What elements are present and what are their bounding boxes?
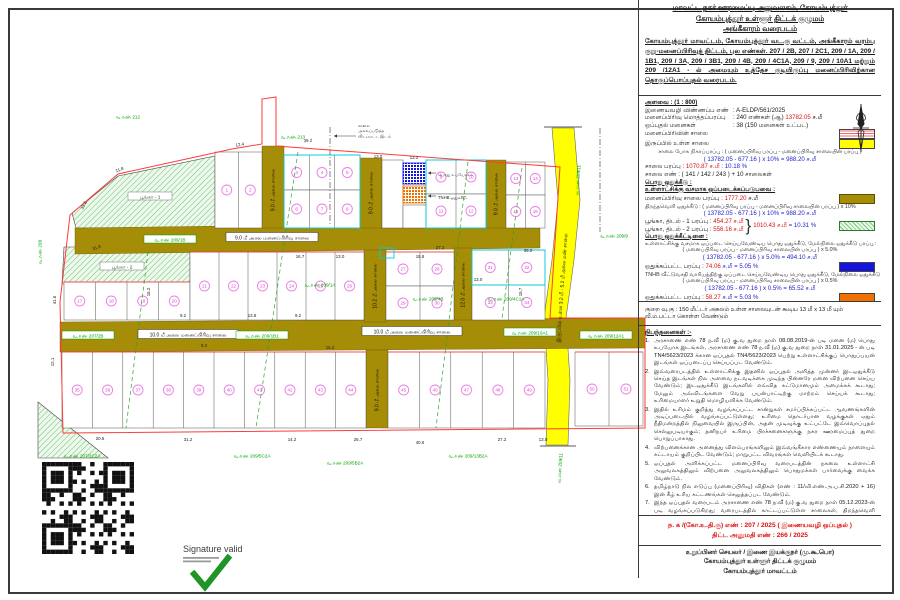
dimension-label: 13.0 — [539, 437, 548, 442]
plot-number: 28 — [434, 267, 440, 272]
svg-text:வ.எண் 213: வ.எண் 213 — [281, 135, 305, 140]
road-label: 9.0 மீ அகல சாலை — [494, 173, 500, 215]
plot-number: 4 — [321, 170, 324, 175]
signature-valid-text: Signature valid — [183, 544, 243, 554]
tnhb-area: 58.27 — [706, 294, 721, 302]
condition-item: 4.விற்பனைக்கான அனைத்து விளம்பரங்களிலும் … — [645, 445, 875, 460]
survey-number-label: வ.எண் 208 — [38, 240, 43, 264]
plot-number: 27 — [400, 267, 406, 272]
qr-code — [39, 459, 137, 557]
svg-text:10.0 மீ அகல மனைப்பிரிவு சாலை: 10.0 மீ அகல மனைப்பிரிவு சாலை — [150, 333, 227, 339]
legend-swatch-park — [839, 221, 875, 231]
road-label: 9.0 மீ அகல சாலை — [375, 369, 381, 411]
dimension-label: 16.7 — [296, 254, 305, 259]
plot-number: 29 — [400, 301, 406, 306]
plot-number: 35 — [75, 388, 81, 393]
plot-number: 23 — [260, 284, 266, 289]
legend-block: அளவை : (1 : 800) இணையவழி விண்ணப்ப எண்: A… — [639, 96, 881, 302]
svg-text:வ.எண் 209/5C2A: வ.எண் 209/5C2A — [234, 454, 272, 459]
survey-number-label: வ.எண் 209/12A1 — [580, 331, 632, 339]
plot-number: 43 — [318, 388, 324, 393]
plot-number: 13 — [513, 176, 519, 181]
survey-number-label: வ.எண் 209/13B2A — [448, 454, 488, 459]
plot-number: 49 — [527, 388, 533, 393]
road-label: 10.0 மீ அகல மனைப்பிரிவு சாலை — [138, 330, 238, 339]
condition-item: 6.தமிழ்நாடு நில எடுப்பு (மனைப்பிரிவு) வி… — [645, 484, 875, 499]
svg-text:12.0 மீ அகல சாலை: 12.0 மீ அகல சாலை — [461, 262, 467, 307]
svg-text:வ.எண் 209/1A: வ.எண் 209/1A — [305, 283, 337, 288]
approval-title: அங்கீகாரம் வரைபடம் — [645, 24, 875, 35]
plot-number: 12 — [468, 209, 474, 214]
handover-area: 74.06 — [706, 263, 721, 271]
dimension-label: 39.2 — [303, 138, 312, 144]
dimension-label: 41.6 — [52, 295, 57, 304]
plot-number: 6 — [295, 207, 298, 212]
open-space-calc-label: திறந்தவெளி ஒதுக்கீடு : ( மனைப்பிரிவு பரப… — [645, 204, 875, 211]
plot-number: 42 — [287, 388, 293, 393]
survey-number-label: வ.எண் 207/2B — [62, 331, 114, 339]
plot-number: 2 — [249, 188, 252, 193]
plot-number: 3 — [295, 170, 298, 175]
plot-number: 51 — [623, 387, 629, 392]
svg-text:வ.எண் 208: வ.எண் 208 — [38, 240, 43, 264]
svg-text:10.0 மீ அகல மனைப்பிரிவு சாலை: 10.0 மீ அகல மனைப்பிரிவு சாலை — [374, 330, 451, 336]
tnhb-sub: TNHB வீட்டுவசதி வாரியத்திற்கு ஒப்படை செய… — [645, 272, 875, 279]
survey-number-label: வ.எண் 209/11 — [556, 452, 563, 483]
dimension-label: 13.0 — [336, 254, 345, 259]
calc2-label: ( மனைப்பிரிவு பரப்பு - மனைப்பிரிவு சாலைய… — [645, 247, 875, 254]
svg-text:வ.எண் 209/9: வ.எண் 209/9 — [600, 234, 628, 239]
layout-map: பூங்கா - 1பூங்கா - 212345678910111213141… — [0, 0, 648, 600]
survey-number-label: வ.எண் 209/1B — [144, 235, 196, 243]
plot-number: 32 — [524, 265, 530, 270]
park-total-area: 1010.43 ச.மீ — [753, 222, 787, 229]
road-area-value: 1070.87 ச.மீ — [686, 163, 720, 171]
signatory-district: கோயம்புத்தூர் மாவட்டம் — [645, 567, 875, 576]
plot-number: 7 — [321, 207, 324, 212]
plot-number: 14 — [533, 176, 539, 181]
dimension-label: 20.5 — [96, 436, 105, 441]
svg-text:வ.எண் 209/1B1: வ.எண் 209/1B1 — [245, 334, 279, 339]
conditions-list: 1.அரசாணை எண் 78 ந.வீ (ம) கு.வ துறை நாள் … — [645, 338, 875, 516]
dimension-label: 9.2 — [180, 313, 187, 318]
dimension-label: 9.2 — [295, 313, 302, 318]
legend-swatch-public-use — [839, 262, 875, 272]
approved-plots-label: ஒப்புதல் மனைகள் — [645, 122, 733, 130]
digital-signature: Signature valid — [183, 544, 243, 587]
info-panel: மாவட்ட நகர் ஊரமைப்பு அலுவலகம், கோயம்புத்… — [638, 0, 881, 578]
park1-area: 454.27 ச.மீ — [713, 218, 743, 226]
svg-text:வ.எண் 209/13B2A: வ.எண் 209/13B2A — [448, 454, 488, 459]
survey-number-label: வ.எண் 213 — [281, 135, 305, 140]
approved-plots-value: : 38 (150 மனைகள் உட்பட) — [733, 122, 808, 130]
conditions-heading: நிபந்தனைகள் :- — [645, 329, 875, 337]
total-area-label: மனைப்பிரிவு மொத்தப்பரப்பு — [645, 114, 733, 122]
net-formula-label: சாலை போக நிகரப்பரப்பு : ( மனைப்பிரிவு பர… — [645, 149, 875, 156]
signature-checkmark-icon — [194, 558, 228, 587]
dimension-label: 9.2 — [201, 343, 208, 348]
condition-item: 3.இதில் உரிமம் குறித்து வழங்கப்பட்ட சான்… — [645, 407, 875, 443]
office-title: மாவட்ட நகர் ஊரமைப்பு அலுவலகம், கோயம்புத்… — [645, 3, 875, 14]
plot-number: 34 — [524, 300, 530, 305]
application-no-value: : A-ELDP/561/2025 — [733, 107, 785, 115]
dimension-label: 15.7 — [518, 287, 523, 296]
dimension-label: 15.2 — [146, 287, 151, 296]
legend-swatch-subdivision-road — [839, 194, 875, 204]
net-formula-value: ( 13782.05 - 677.16 ) x 10% = 988.20 ச.ம… — [645, 156, 875, 164]
dimension-label: 27.2 — [436, 245, 445, 250]
survey-number-label: வ.எண் 209/10A1 — [504, 328, 556, 336]
survey-number-label: வ.எண் 209/11 — [574, 164, 581, 195]
plot-number: 20 — [172, 299, 178, 304]
condition-item: 7.இந்த ஒப்புதல் வரைபடம் அரசாணை எண் 78 ந.… — [645, 500, 875, 516]
plot-number: 47 — [464, 388, 470, 393]
reference-block: ந. க /(கோ.உ.தி.கு) எண் : 207 / 2025 ( இண… — [639, 516, 881, 546]
dimension-label: 13.2 — [410, 155, 419, 160]
application-no-label: இணையவழி விண்ணப்ப எண் — [645, 107, 733, 115]
svg-text:9.0 மீ அகல மனைப்பிரிவு சாலை: 9.0 மீ அகல மனைப்பிரிவு சாலை — [235, 236, 309, 242]
svg-text:வ.எண் 209/11: வ.எண் 209/11 — [574, 164, 581, 195]
svg-text:விடப்பட்ட இடம்: விடப்பட்ட இடம் — [358, 133, 391, 139]
plot-number: 48 — [495, 388, 501, 393]
plot-number: 50 — [589, 387, 595, 392]
svg-text:வ.எண் 209/5B2A: வ.எண் 209/5B2A — [327, 461, 364, 466]
reference-number: ந. க /(கோ.உ.தி.கு) எண் : 207 / 2025 ( இண… — [645, 521, 875, 531]
park2-area: 556.16 ச.மீ — [713, 226, 743, 234]
svg-text:வ.எண் 209/11: வ.எண் 209/11 — [556, 452, 563, 483]
public-reserve-sub2: உள்ளாட்சிக்கு வசமாக ஒப்படை செய்யவேண்டிய … — [645, 241, 875, 248]
svg-text:வ.எண் 209/10A1: வ.எண் 209/10A1 — [512, 331, 548, 336]
tnhb-plot — [403, 186, 426, 203]
plot-number: 19 — [140, 299, 146, 304]
plot-number: 46 — [433, 388, 439, 393]
survey-number-label: வ.எண் 212 — [116, 115, 140, 120]
leader-annotation: சாலைஅகலப்படுத்தவிடப்பட்ட இடம் — [334, 123, 391, 139]
signatory-designation: உறுப்பினர் செயலர் / இணை இயக்குநர் (மு.கூ… — [645, 548, 875, 557]
dimension-label: 35.0 — [524, 248, 533, 253]
condition-item: 1.அரசாணை எண் 78 ந.வீ (ம) கு.வ துறை நாள் … — [645, 338, 875, 367]
authority-title: கோயம்புத்தூர் உள்ளூர் திட்டக் குழுமம் — [645, 14, 875, 25]
plot-block — [403, 205, 426, 228]
total-area-value: 13782.05 — [785, 114, 810, 122]
road-label: 9.0 மீ அகல சாலை — [369, 172, 375, 214]
survey-number-label: வ.எண் 209/9 — [600, 234, 628, 239]
svg-text:9.0 மீ அகல சாலை: 9.0 மீ அகல சாலை — [271, 169, 277, 211]
road-label: 9.0 மீ அகல சாலை — [271, 169, 277, 211]
plot-number: 37 — [135, 388, 141, 393]
park-label: பூங்கா - 1 — [140, 194, 161, 200]
dimension-label: 13.0 — [474, 277, 483, 282]
plot-number: 17 — [77, 299, 83, 304]
svg-text:வ.எண் 207/2C2A: வ.எண் 207/2C2A — [64, 454, 102, 459]
legend-swatch-tnhb — [839, 293, 875, 302]
plot-number: 18 — [109, 299, 115, 304]
signatory-authority: கோயம்புத்தூர் உள்ளூர் திட்டக் குழுமம் — [645, 557, 875, 566]
condition-item: 5.ஒப்புதல் அளிக்கப்பட்ட மனைப்பிரிவு வரைப… — [645, 461, 875, 483]
dimension-label: 40.6 — [416, 440, 425, 445]
public-use-plot — [403, 163, 426, 184]
plot-number: 45 — [401, 388, 407, 393]
svg-text:9.0 மீ அகல சாலை: 9.0 மீ அகல சாலை — [375, 369, 381, 411]
public-reserve-head2: பொது ஒதுக்கீட்டினை : — [645, 233, 708, 241]
plot-number: 5 — [346, 170, 349, 175]
survey-number-label: வ.எண் 209/1B1 — [236, 331, 288, 339]
svg-text:வ.எண் 209/4B: வ.எண் 209/4B — [413, 297, 444, 302]
svg-text:10.2 மீ அகல சாலை: 10.2 மீ அகல சாலை — [373, 263, 379, 308]
open-space-calc-value: ( 13782.05 - 677.16 ) x 10% = 988.20 ச.ம… — [645, 210, 875, 218]
scale-label: அளவை : (1 : 800) — [645, 99, 697, 107]
plot-number: 22 — [231, 284, 237, 289]
plot-number: 21 — [202, 284, 208, 289]
park-label: பூங்கா - 2 — [112, 264, 133, 270]
survey-number-label: வ.எண் 209/4B — [413, 297, 444, 302]
svg-text:வ.எண் 207/2B: வ.எண் 207/2B — [73, 334, 104, 339]
calc3-label: ( மனைப்பிரிவு பரப்பு - மனைப்பிரிவு சாலைய… — [645, 278, 875, 285]
subdivision-road-area: : 1777.20 — [721, 195, 746, 203]
road-label: 10.0 மீ அகல மனைப்பிரிவு சாலை — [362, 327, 462, 336]
plan-permit-number: திட்ட அனுமதி எண் : 266 / 2025 — [645, 531, 875, 541]
svg-text:வ.எண் 209/1B: வ.எண் 209/1B — [155, 238, 186, 243]
plot-number: 39 — [196, 388, 202, 393]
plot-number: 1 — [225, 188, 228, 193]
scheme-description: கோயம்புத்தூர் மாவட்டம், கோயம்புத்தூர் வட… — [645, 37, 875, 86]
svg-text:வ.எண் 209/12A1: வ.எண் 209/12A1 — [588, 334, 624, 339]
signatory-block: உறுப்பினர் செயலர் / இணை இயக்குநர் (மு.கூ… — [639, 546, 881, 578]
legend-road-label: மனைப்பிரிவின் சாலை — [645, 130, 733, 138]
calc2-value: ( 13782.05 - 677.16 ) x 5.0% = 494.10 ச.… — [645, 254, 875, 262]
road-count: சாலை எண் : ( 141 / 142 / 243 ) + 10 சாலை… — [645, 171, 875, 179]
survey-number-label: வ.எண் 209/1A — [305, 283, 337, 288]
road-label: 12.0 மீ அகல சாலை — [461, 262, 467, 307]
survey-number-label: வ.எண் 209/5C2A — [234, 454, 272, 459]
note-strip: குறை வு.கு : 150 மீட்டர் அகலம் உள்ள சாலை… — [639, 302, 881, 326]
dimension-label: 26.7 — [354, 437, 363, 442]
public-reserve-head1: பொது ஒதுக்கீடு : — [645, 179, 692, 187]
survey-number-label: வ.எண் 209/5B2A — [327, 461, 364, 466]
calc3-value: ( 13782.05 - 677.16 ) x 0.5% = 65.52 ச.ம… — [645, 285, 875, 293]
plot-number: 31 — [488, 265, 494, 270]
title-block: மாவட்ட நகர் ஊரமைப்பு அலுவலகம், கோயம்புத்… — [639, 0, 881, 96]
legend-exist-label: இருப்பில் உள்ள சாலை — [645, 140, 733, 148]
road-label: 10.2 மீ அகல சாலை — [373, 263, 379, 308]
plot-number: 16 — [533, 209, 539, 214]
dimension-label: 31.2 — [184, 437, 193, 442]
plot-number: 40 — [227, 388, 233, 393]
dimension-label: 12.1 — [50, 357, 55, 366]
north-compass-icon — [849, 102, 873, 154]
condition-item: 2.இவ்வரைபடத்தில் உள்ளாட்சிக்கு இதனில் ஒப… — [645, 369, 875, 405]
plot-number: 44 — [348, 388, 354, 393]
plot-number: 38 — [166, 388, 172, 393]
plot-number: 24 — [289, 284, 295, 289]
dimension-label: 14.2 — [288, 437, 297, 442]
plot-block — [382, 160, 403, 228]
plot-number: 36 — [105, 388, 111, 393]
dimension-label: 11.8 — [115, 166, 125, 174]
plot-number: 8 — [346, 207, 349, 212]
dimension-label: 16.2 — [326, 345, 335, 350]
survey-number-label: வ.எண் 207/2C2A — [64, 454, 102, 459]
public-reserve-sub1: உள்ளாட்சிக்கு வசமாக ஒப்படைக்கப்படுபவை : — [645, 186, 775, 194]
svg-text:வ.எண் 212: வ.எண் 212 — [116, 115, 140, 120]
plot-number: 26 — [347, 284, 353, 289]
road-label: 9.0 மீ அகல மனைப்பிரிவு சாலை — [226, 233, 318, 242]
svg-text:9.0 மீ அகல சாலை: 9.0 மீ அகல சாலை — [494, 173, 500, 215]
dimension-label: 13.0 — [374, 154, 383, 159]
conditions-block: நிபந்தனைகள் :- 1.அரசாணை எண் 78 ந.வீ (ம) … — [639, 326, 881, 516]
brace-glyph: } — [746, 218, 752, 233]
plot-number: 11 — [439, 209, 444, 214]
dimension-label: 15.8 — [416, 254, 425, 259]
svg-text:9.0 மீ அகல சாலை: 9.0 மீ அகல சாலை — [369, 172, 375, 214]
dimension-label: 13.8 — [248, 313, 257, 318]
layout-approval-sheet: { "panel": { "title": { "line1": "மாவட்ட… — [0, 0, 900, 600]
dimension-label: 27.2 — [498, 437, 507, 442]
